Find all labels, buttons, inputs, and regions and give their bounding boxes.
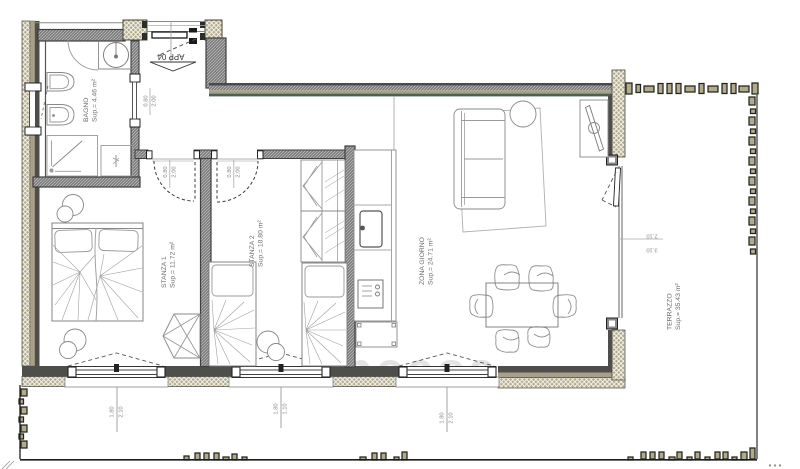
svg-text:1.80: 1.80: [440, 412, 446, 423]
svg-text:STANZA 2: STANZA 2: [249, 235, 256, 267]
svg-text:0.80: 0.80: [163, 166, 169, 177]
svg-text:APP 04: APP 04: [157, 52, 185, 61]
svg-text:STANZA 1: STANZA 1: [161, 256, 168, 288]
svg-text:2.00: 2.00: [172, 166, 178, 177]
svg-text:2.10: 2.10: [646, 233, 657, 239]
svg-text:ZONA GIORNO: ZONA GIORNO: [419, 237, 426, 285]
svg-text:Sup.= 4.46 m²: Sup.= 4.46 m²: [92, 78, 99, 122]
svg-text:0.80: 0.80: [227, 166, 233, 177]
svg-text:Sup.= 24.71 m²: Sup.= 24.71 m²: [428, 238, 435, 285]
svg-text:Sup.= 11.72 m²: Sup.= 11.72 m²: [170, 241, 177, 288]
svg-text:Sup.= 10.80 m²: Sup.= 10.80 m²: [258, 220, 265, 267]
svg-text:3.10: 3.10: [646, 247, 657, 253]
svg-text:2.10: 2.10: [449, 412, 455, 423]
svg-text:TERRAZZO: TERRAZZO: [667, 293, 674, 330]
svg-text:BAGNO: BAGNO: [83, 97, 90, 122]
svg-text:0.80: 0.80: [144, 95, 150, 106]
svg-text:1.80: 1.80: [110, 406, 116, 417]
svg-text:2.10: 2.10: [119, 406, 125, 417]
svg-text:1.80: 1.80: [274, 403, 280, 414]
svg-text:2.00: 2.00: [236, 166, 242, 177]
svg-text:2.00: 2.00: [152, 95, 158, 106]
svg-text:Sup.= 35.43 m²: Sup.= 35.43 m²: [675, 283, 682, 330]
svg-text:1.10: 1.10: [283, 403, 289, 414]
